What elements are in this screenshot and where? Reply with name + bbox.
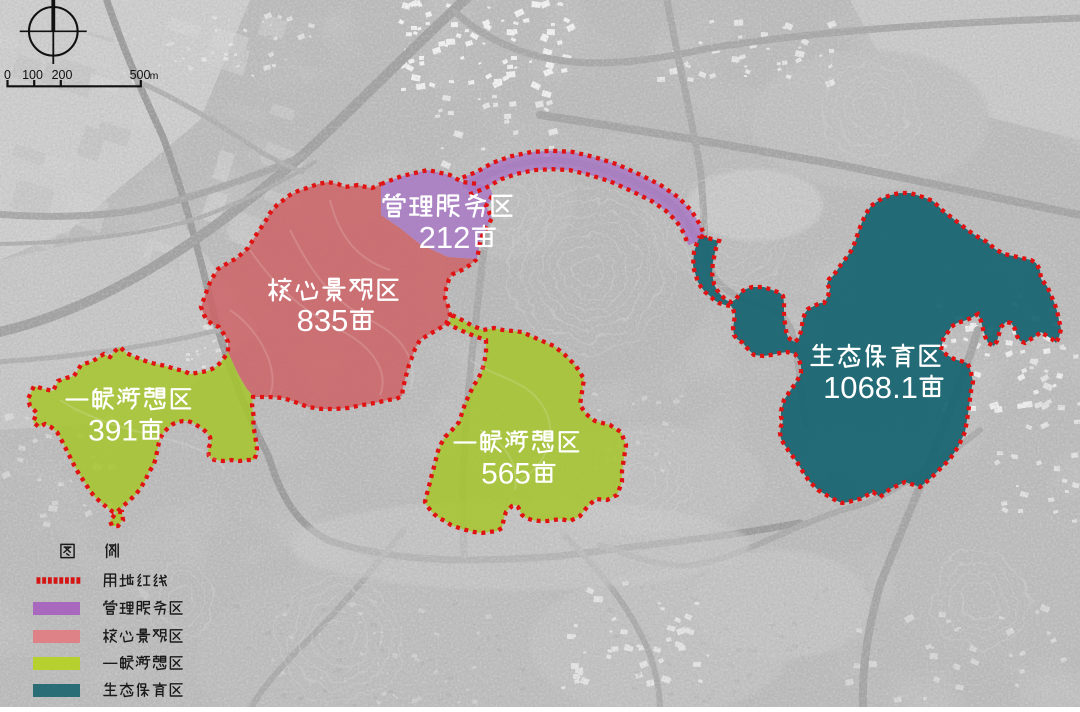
svg-text:9: 9 <box>105 415 122 448</box>
svg-text:8: 8 <box>875 370 892 405</box>
svg-text:1: 1 <box>901 370 918 405</box>
svg-text:200: 200 <box>52 68 73 82</box>
svg-text:3: 3 <box>314 303 331 338</box>
svg-text:1: 1 <box>121 415 138 448</box>
svg-text:2: 2 <box>453 220 470 255</box>
svg-text:8: 8 <box>297 303 314 338</box>
svg-text:5: 5 <box>331 303 348 338</box>
svg-text:m: m <box>150 70 159 82</box>
svg-text:5: 5 <box>514 458 531 491</box>
svg-text:5: 5 <box>481 458 498 491</box>
svg-text:2: 2 <box>419 220 436 255</box>
svg-text:0: 0 <box>840 370 857 405</box>
svg-text:100: 100 <box>22 68 43 82</box>
svg-text:1: 1 <box>436 220 453 255</box>
svg-text:3: 3 <box>88 415 105 448</box>
svg-text:.: . <box>892 370 901 405</box>
svg-text:6: 6 <box>858 370 875 405</box>
svg-text:6: 6 <box>498 458 515 491</box>
svg-text:0: 0 <box>4 68 11 82</box>
svg-text:500: 500 <box>130 68 151 82</box>
svg-text:1: 1 <box>823 370 840 405</box>
